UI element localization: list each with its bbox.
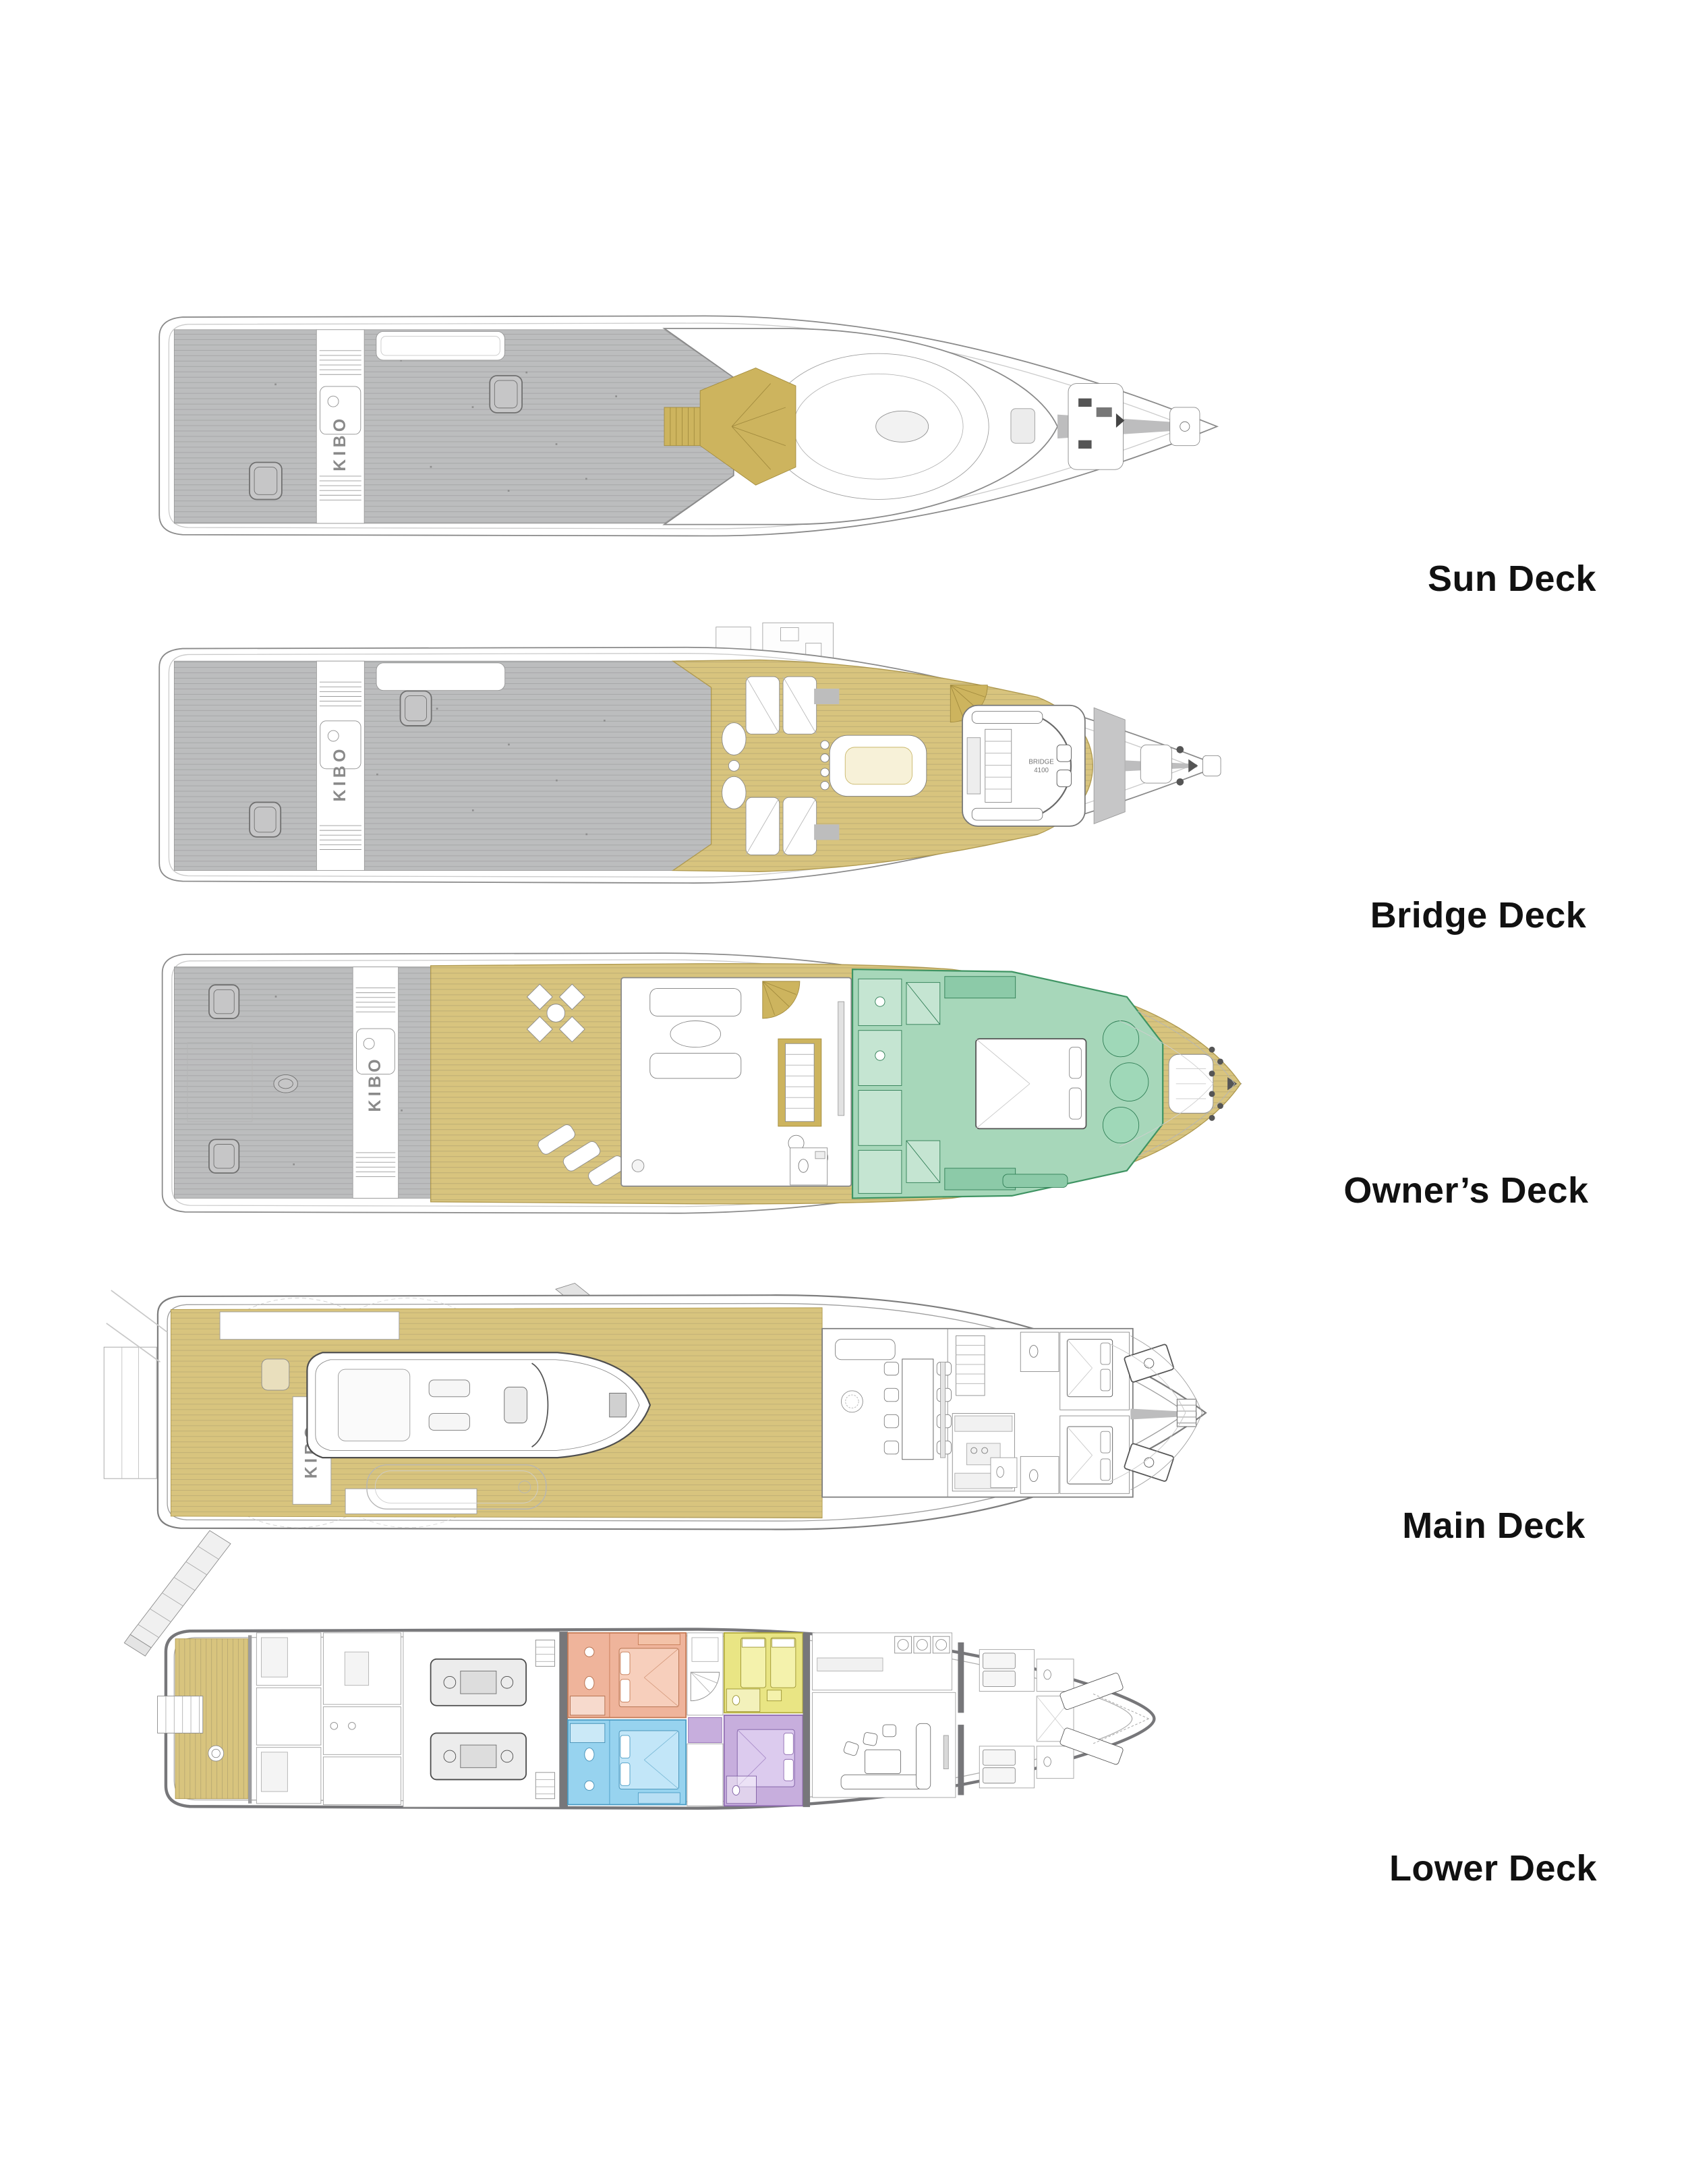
hull-marking-text: KIBO [331,745,349,801]
deck-label-sun: Sun Deck [1428,558,1596,600]
sun-equipment-column: KIBO [316,330,364,523]
owners-stateroom [852,969,1163,1198]
deck-label-main: Main Deck [1402,1505,1586,1547]
owners-deck-plan: KIBO [155,931,1389,1234]
bridge-aft-teak-deck [174,661,711,870]
wheelhouse: BRIDGE 4100 [962,706,1085,826]
purple-wardrobe [689,1717,722,1742]
deck-label-owners: Owner’s Deck [1343,1170,1588,1211]
deck-label-bridge: Bridge Deck [1370,894,1587,936]
laundry-room [813,1633,952,1690]
stowed-tender [307,1352,650,1458]
hull-marking-text: KIBO [366,1056,384,1112]
bridge-equipment-column: KIBO [316,661,364,870]
engine-room [403,1632,560,1807]
crew-quarters [256,1633,401,1805]
bar-counter [821,735,927,796]
guest-cabin-port-fwd [568,1720,686,1805]
owners-equipment-column: KIBO [353,967,399,1199]
bridge-room-label: BRIDGE [1028,759,1054,766]
fwd-bulkhead [803,1633,810,1807]
engine-room-bulkhead [560,1632,568,1807]
guest-cabin-stbd-fwd [724,1715,803,1806]
cabin-lobby-stairs [687,1633,723,1806]
indoor-outdoor-salon [621,978,851,1186]
owners-bed [976,1039,1086,1128]
sun-deck-plan: KIBO [155,293,1362,563]
bridge-room-number: 4100 [1034,767,1049,774]
bridge-deck-plan: KIBO [155,600,1369,914]
yacht-ga-plan: KIBO Sun Deck [0,0,1686,2184]
guest-cabin-port-aft [568,1633,686,1718]
lower-deck-plan [155,1599,1342,1841]
swim-platform [104,1347,156,1478]
guest-cabin-stbd-aft [724,1633,803,1713]
main-superstructure [822,1329,1133,1497]
hull-marking-text: KIBO [331,415,349,471]
deck-label-lower: Lower Deck [1389,1847,1597,1889]
day-head [790,1148,827,1185]
crew-mess [813,1692,956,1798]
